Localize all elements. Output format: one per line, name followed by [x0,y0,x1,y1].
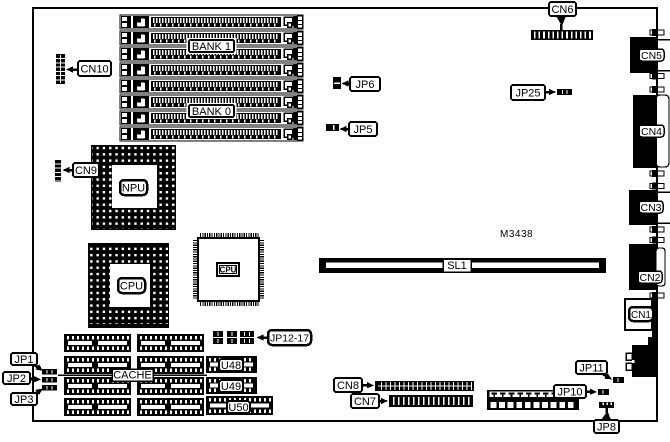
svg-text:JP11: JP11 [579,362,603,374]
svg-text:JP12-17: JP12-17 [270,332,309,344]
svg-text:CN2: CN2 [639,272,660,284]
svg-text:CN4: CN4 [641,126,662,138]
svg-text:CN6: CN6 [551,4,573,16]
svg-text:NPU: NPU [122,182,145,194]
svg-text:CPU: CPU [120,280,143,292]
svg-text:CPU: CPU [220,266,237,275]
svg-text:BANK 1: BANK 1 [192,41,231,53]
svg-text:CN1: CN1 [631,310,651,321]
svg-text:JP2: JP2 [7,373,26,385]
svg-text:U50: U50 [228,402,248,414]
svg-text:CN9: CN9 [75,165,97,177]
svg-text:U49: U49 [221,381,241,393]
svg-text:CN3: CN3 [640,202,661,214]
svg-text:CACHE: CACHE [113,370,152,382]
svg-text:JP3: JP3 [15,394,34,406]
svg-text:JP5: JP5 [354,124,373,136]
svg-text:JP6: JP6 [356,79,375,91]
svg-text:JP10: JP10 [557,386,582,398]
svg-text:M3438: M3438 [500,229,533,240]
svg-text:U48: U48 [221,360,241,372]
svg-text:SL1: SL1 [447,260,467,272]
svg-text:JP1: JP1 [15,354,34,366]
svg-text:CN5: CN5 [641,50,662,62]
svg-text:CN8: CN8 [337,380,359,392]
svg-text:BANK 0: BANK 0 [192,106,231,118]
svg-text:JP8: JP8 [597,421,616,433]
svg-text:JP25: JP25 [515,87,540,99]
svg-text:CN7: CN7 [354,396,376,408]
svg-text:CN10: CN10 [80,63,108,75]
